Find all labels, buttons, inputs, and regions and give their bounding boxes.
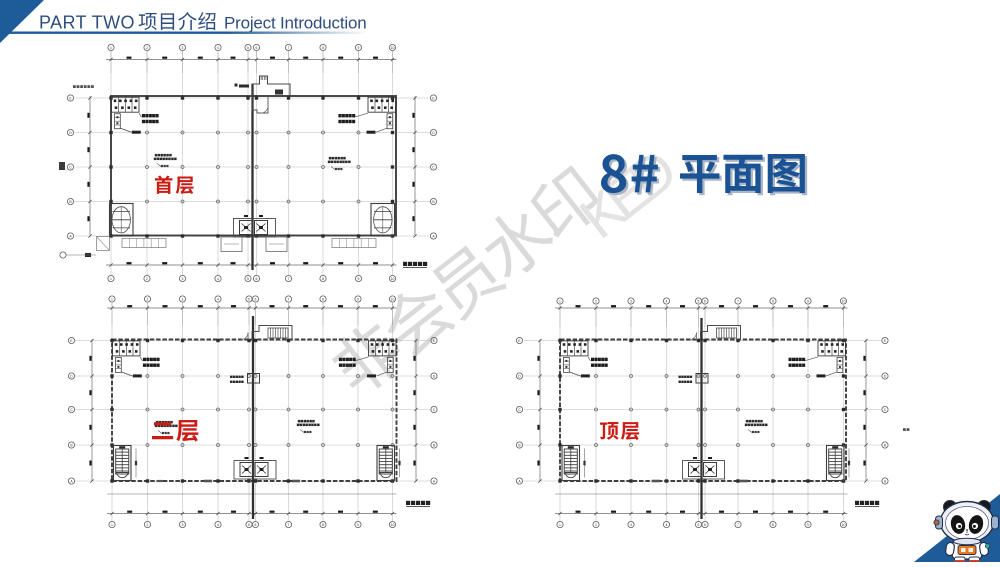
svg-text:10: 10: [391, 277, 395, 281]
svg-text:6: 6: [255, 297, 257, 301]
svg-text:10: 10: [391, 523, 395, 527]
svg-text:10: 10: [391, 297, 395, 301]
svg-text:1: 1: [111, 297, 113, 301]
svg-text:6: 6: [704, 299, 706, 303]
svg-text:PART TWO: PART TWO: [39, 13, 135, 33]
svg-text:6: 6: [704, 523, 706, 527]
svg-text:7: 7: [288, 523, 290, 527]
svg-text:4: 4: [217, 46, 219, 50]
svg-text:8: 8: [772, 523, 774, 527]
svg-text:3: 3: [630, 523, 632, 527]
svg-text:6: 6: [256, 46, 258, 50]
svg-text:10: 10: [842, 523, 846, 527]
svg-text:7: 7: [737, 523, 739, 527]
svg-text:1: 1: [559, 299, 561, 303]
svg-text:3: 3: [182, 46, 184, 50]
svg-text:7: 7: [288, 46, 290, 50]
svg-text:3: 3: [630, 299, 632, 303]
svg-text:3: 3: [182, 277, 184, 281]
svg-text:1: 1: [110, 46, 112, 50]
svg-text:4: 4: [217, 523, 219, 527]
svg-text:3: 3: [182, 523, 184, 527]
svg-text:5: 5: [698, 299, 700, 303]
svg-text:9: 9: [807, 299, 809, 303]
svg-text:2: 2: [595, 299, 597, 303]
svg-text:7: 7: [737, 299, 739, 303]
svg-text:6: 6: [255, 523, 257, 527]
svg-text:8: 8: [322, 46, 324, 50]
svg-text:2: 2: [146, 46, 148, 50]
svg-text:1: 1: [110, 277, 112, 281]
svg-text:9: 9: [358, 46, 360, 50]
svg-text:7: 7: [288, 297, 290, 301]
svg-text:4: 4: [666, 523, 668, 527]
svg-text:10: 10: [842, 299, 846, 303]
svg-text:8: 8: [322, 297, 324, 301]
svg-text:8: 8: [772, 299, 774, 303]
svg-text:Project Introduction: Project Introduction: [224, 14, 366, 33]
svg-text:3: 3: [182, 297, 184, 301]
svg-text:2: 2: [147, 523, 149, 527]
svg-text:5: 5: [247, 46, 249, 50]
svg-text:2: 2: [146, 277, 148, 281]
svg-text:4: 4: [217, 297, 219, 301]
svg-text:9: 9: [357, 523, 359, 527]
svg-text:5: 5: [247, 277, 249, 281]
svg-text:4: 4: [217, 277, 219, 281]
svg-text:5: 5: [248, 297, 250, 301]
svg-text:5: 5: [698, 523, 700, 527]
svg-text:4: 4: [666, 299, 668, 303]
svg-text:9: 9: [358, 277, 360, 281]
svg-text:1: 1: [111, 523, 113, 527]
svg-text:2: 2: [147, 297, 149, 301]
svg-text:8: 8: [322, 523, 324, 527]
svg-text:9: 9: [357, 297, 359, 301]
svg-text:1: 1: [559, 523, 561, 527]
svg-text:6: 6: [256, 277, 258, 281]
svg-text:7: 7: [288, 277, 290, 281]
svg-text:2: 2: [595, 523, 597, 527]
svg-text:8: 8: [322, 277, 324, 281]
svg-text:10: 10: [391, 46, 395, 50]
svg-text:9: 9: [807, 523, 809, 527]
svg-text:5: 5: [248, 523, 250, 527]
